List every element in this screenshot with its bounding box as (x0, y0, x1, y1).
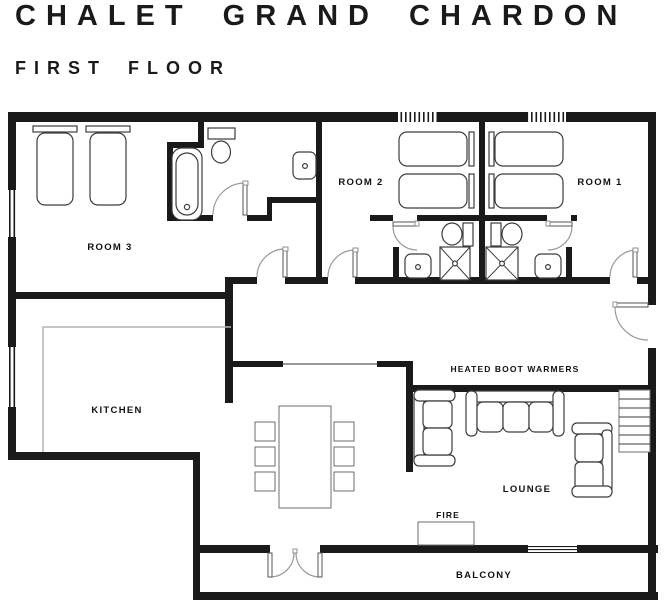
window-room1 (527, 112, 566, 122)
wall-kitchen-bottom (8, 452, 200, 460)
bed-headboard (469, 132, 474, 166)
toilet-cistern (208, 128, 235, 139)
bed-headboard (469, 174, 474, 208)
fireplace (418, 522, 474, 545)
dining-chair (334, 472, 354, 491)
wall-bathroom-step-h (267, 197, 320, 203)
wall-room1-room2-divider (479, 112, 485, 284)
floorplan-page: CHALET GRAND CHARDON FIRST FLOOR (0, 0, 664, 605)
lounge-sofa-right (572, 423, 612, 497)
label-room2: ROOM 2 (338, 177, 383, 188)
sofa-cushion (423, 401, 452, 428)
window-room2 (398, 112, 438, 122)
twin-bed (399, 174, 467, 208)
toilet-bowl (442, 223, 462, 245)
twin-bed (495, 132, 563, 166)
label-balcony: BALCONY (456, 570, 512, 581)
lounge-sofa-center (466, 391, 564, 436)
door-room2 (328, 248, 358, 277)
bathtub-drain (184, 204, 189, 209)
opening-entry-door (648, 305, 656, 348)
label-kitchen: KITCHEN (91, 405, 142, 416)
sofa-back (470, 391, 560, 402)
wall-ensuite-top-b (417, 215, 547, 221)
shower-drain (453, 261, 458, 266)
door-ensuite-room2 (393, 221, 419, 250)
toilet-cistern (491, 223, 501, 246)
sofa-arm (553, 391, 564, 436)
room3-beds (33, 126, 130, 205)
wall-balcony-bottom (193, 592, 658, 600)
dining-table (279, 406, 331, 508)
wall-room3-bottom (8, 292, 233, 299)
wall-ensuite-side-right (566, 247, 572, 284)
twin-bed (399, 132, 467, 166)
wall-bathroom-topleft (198, 112, 204, 148)
window-lounge (528, 545, 577, 553)
wall-outer-left (8, 112, 16, 460)
label-room3: ROOM 3 (87, 242, 132, 253)
window-room3 (8, 190, 16, 237)
sofa-cushion (423, 428, 452, 455)
wall-ensuite-top-a (370, 215, 393, 221)
wall-room2-west (316, 112, 322, 284)
toilet-bowl (212, 141, 231, 163)
wall-ensuite-top-c (571, 215, 577, 221)
lounge-sofa-left (414, 390, 455, 466)
sofa-arm (572, 486, 612, 497)
wall-kitchen-right (225, 277, 233, 403)
sink-tap (303, 164, 308, 169)
kitchen-counter (43, 327, 231, 452)
dining-chair (255, 447, 275, 466)
door-entry (613, 302, 648, 340)
room2-ensuite-fixtures (405, 223, 473, 280)
single-bed (90, 133, 126, 205)
sofa-arm (414, 455, 455, 466)
door-french-balcony (268, 549, 322, 577)
bed-headboard (489, 174, 494, 208)
dining-chair (255, 422, 275, 441)
wall-dining-lounge-divider (406, 361, 413, 472)
sofa-arm (466, 391, 477, 436)
room1-beds (489, 132, 563, 208)
sofa-cushion (503, 402, 529, 432)
door-room1 (610, 248, 638, 277)
door-ensuite-room1 (546, 221, 572, 250)
sink-tap (416, 265, 421, 270)
sofa-cushion (575, 434, 603, 462)
window-kitchen (8, 347, 16, 407)
sofa-cushion (529, 402, 553, 432)
wall-ensuite-side-left (393, 247, 399, 284)
twin-bed (495, 174, 563, 208)
sofa-back (414, 392, 424, 464)
sofa-cushion (477, 402, 503, 432)
dining-chair (334, 447, 354, 466)
bed-headboard (489, 132, 494, 166)
door-room3-vestibule (257, 247, 288, 277)
dining-chair (334, 422, 354, 441)
doors (213, 181, 648, 577)
single-bed (37, 133, 73, 205)
room1-ensuite-fixtures (486, 223, 561, 280)
label-room1: ROOM 1 (577, 177, 622, 188)
label-lounge: LOUNGE (503, 484, 551, 495)
sofa-arm (414, 390, 455, 401)
bed-headboard (33, 126, 77, 132)
wall-corridor-d (637, 277, 648, 284)
bed-headboard (86, 126, 130, 132)
sink-tap (546, 265, 551, 270)
room-labels: ROOM 3 ROOM 2 ROOM 1 KITCHEN HEATED BOOT… (87, 177, 622, 581)
shower-drain (500, 261, 505, 266)
floor-plan-drawing: ROOM 3 ROOM 2 ROOM 1 KITCHEN HEATED BOOT… (0, 0, 664, 605)
wall-main-bottom (200, 545, 658, 553)
dining-set (255, 406, 354, 508)
label-boot-warmers: HEATED BOOT WARMERS (451, 364, 580, 374)
toilet-bowl (502, 223, 522, 245)
staircase (619, 390, 650, 452)
toilet-cistern (463, 223, 473, 246)
wall-corridor-a (233, 277, 257, 284)
wall-dining-top-a (228, 361, 283, 367)
label-fire: FIRE (436, 510, 460, 520)
door-bathroom (213, 181, 248, 215)
room2-beds (399, 132, 474, 208)
dining-chair (255, 472, 275, 491)
opening-dining-top (283, 363, 377, 365)
wall-outer-right (648, 112, 656, 600)
wall-balcony-left (193, 452, 200, 600)
